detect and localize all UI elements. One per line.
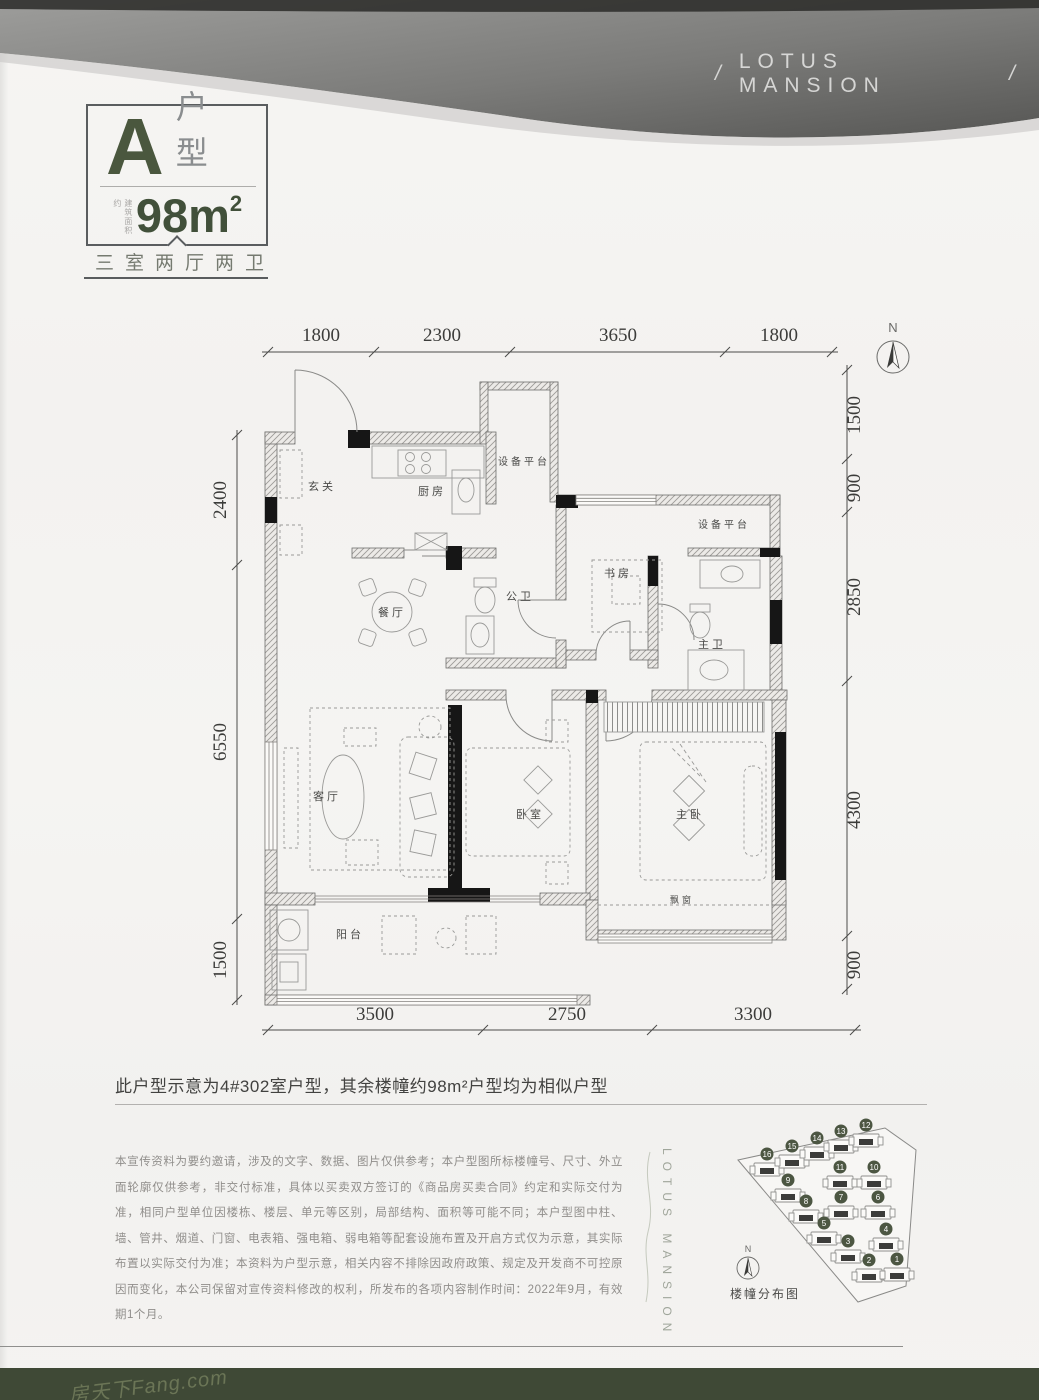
room-label-equip-right: 设备平台 [698,518,750,531]
room-label-public-bath: 公卫 [506,591,534,603]
dim-top-3: 1800 [760,325,798,346]
watermark-text: 房天下Fang.com [67,1368,229,1400]
room-label-kitchen: 厨房 [418,485,446,498]
bottom-band: 房天下Fang.com [0,1368,1039,1400]
svg-text:9: 9 [786,1176,791,1185]
floorplan: 玄关 厨房 设备平台 公卫 餐厅 书房 设备平台 主卫 客厅 卧室 主卧 阳台 … [210,320,909,1035]
dim-right-4: 900 [844,951,865,980]
svg-text:10: 10 [870,1163,879,1172]
svg-text:15: 15 [788,1142,797,1151]
room-label-equip-top: 设备平台 [498,455,550,468]
svg-text:11: 11 [836,1163,845,1172]
furniture [270,446,772,990]
svg-text:14: 14 [813,1134,822,1143]
note-underline [115,1104,927,1105]
brand-vertical: LOTUS MANSION [660,1148,674,1338]
bottom-separator-line [0,1346,903,1347]
dim-right-0: 1500 [844,396,865,434]
dim-top-2: 3650 [599,325,637,346]
flyer-page: / LOTUS MANSION / A 户型 建筑面积约 98m 2 三室两厅两… [0,0,1039,1400]
site-caption: 楼幢分布图 [730,1286,800,1301]
svg-text:7: 7 [839,1193,844,1202]
compass-n-label: N [888,320,897,335]
svg-text:3: 3 [846,1237,851,1246]
svg-text:2: 2 [867,1256,872,1265]
dim-top-0: 1800 [302,325,340,346]
compass-icon: N [877,320,909,373]
svg-text:16: 16 [763,1150,772,1159]
svg-text:5: 5 [822,1219,827,1228]
dim-bottom-1: 2750 [548,1004,586,1025]
room-label-master-bath: 主卫 [698,638,726,651]
dim-bottom-0: 3500 [356,1004,394,1025]
walls-hatched [265,382,787,1005]
site-plan: 16151413121110987654321 N 楼幢分布图 [646,1119,916,1303]
dim-right-3: 4300 [844,791,865,829]
dim-right-2: 2850 [844,578,865,616]
dim-bottom-2: 3300 [734,1004,772,1025]
room-label-study: 书房 [604,567,632,580]
plan-note: 此户型示意为4#302室户型，其余楼幢约98m²户型均为相似户型 [115,1072,935,1097]
svg-text:6: 6 [876,1193,881,1202]
site-compass-icon: N [737,1244,759,1279]
room-label-master-bedroom: 主卧 [676,808,704,821]
room-label-entry: 玄关 [308,479,336,493]
room-label-living: 客厅 [313,789,341,803]
room-label-dining: 餐厅 [378,605,406,619]
svg-text:4: 4 [884,1225,889,1234]
room-label-bay-window: 飘窗 [670,894,694,905]
dim-left-2: 1500 [210,941,231,979]
room-label-balcony: 阳台 [336,927,364,941]
svg-text:1: 1 [895,1255,900,1264]
dim-top-1: 2300 [423,325,461,346]
brand-script-flourish [646,1152,651,1302]
dim-left-0: 2400 [210,481,231,519]
site-compass-n-label: N [745,1244,752,1254]
svg-text:12: 12 [862,1121,871,1130]
dim-right-1: 900 [844,474,865,503]
disclaimer-text: 本宣传资料为要约邀请，涉及的文字、数据、图片仅供参考；本户型图所标楼幢号、尺寸、… [115,1150,623,1329]
room-label-bedroom: 卧室 [516,807,544,821]
svg-text:8: 8 [804,1197,809,1206]
svg-text:13: 13 [837,1127,846,1136]
dim-left-1: 6550 [210,723,231,761]
